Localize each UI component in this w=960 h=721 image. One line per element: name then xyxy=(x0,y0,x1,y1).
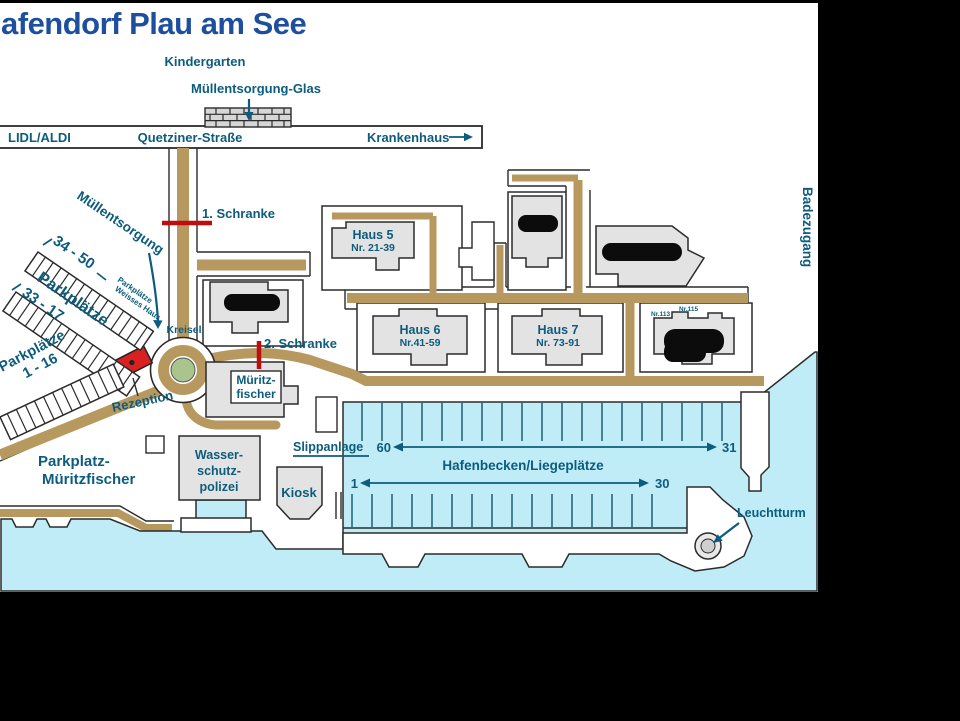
label-police-line3: polizei xyxy=(200,480,239,494)
label-haus6-name: Haus 6 xyxy=(400,323,441,337)
label-slippanlage: Slippanlage xyxy=(293,440,363,454)
label-police-line1: Wasser- xyxy=(195,448,243,462)
label-berth-60: 60 xyxy=(377,440,391,455)
label-haus6-nr: Nr.41-59 xyxy=(400,337,441,349)
label-leuchtturm: Leuchtturm xyxy=(737,506,806,520)
label-haus7-name: Haus 7 xyxy=(538,323,579,337)
label-kiosk: Kiosk xyxy=(281,485,317,500)
slipway-ramp xyxy=(316,397,337,432)
label-haus5-name: Haus 5 xyxy=(353,228,394,242)
redacted-name-blob xyxy=(224,294,280,311)
harbor-map-page: afendorf Plau am See Kindergarten Müllen… xyxy=(0,0,960,721)
label-haus5-nr: Nr. 21-39 xyxy=(351,242,395,254)
frame-bottom xyxy=(0,592,960,721)
frame-top xyxy=(0,0,960,3)
label-lidl-aldi: LIDL/ALDI xyxy=(8,130,71,145)
label-schranke-1: 1. Schranke xyxy=(202,206,275,221)
label-berth-1: 1 xyxy=(351,476,358,491)
label-police-line2: schutz- xyxy=(197,464,241,478)
label-krankenhaus: Krankenhaus xyxy=(367,130,449,145)
label-muellentsorgung-glas: Müllentsorgung-Glas xyxy=(191,81,321,96)
label-quetziner-strasse: Quetziner-Straße xyxy=(138,130,243,145)
building-small-hut xyxy=(146,436,164,453)
label-kreisel: Kreisel xyxy=(166,324,201,336)
label-mueritzfischer-line2: fischer xyxy=(236,387,276,401)
label-kindergarten: Kindergarten xyxy=(165,54,246,69)
label-badezugang: Badezugang xyxy=(800,187,815,267)
label-parkplatz-mf-line1: Parkplatz- xyxy=(38,453,110,470)
label-hafenbecken: Hafenbecken/Liegeplätze xyxy=(442,458,604,473)
label-schranke-2: 2. Schranke xyxy=(264,336,337,351)
label-haus7-nr: Nr. 73-91 xyxy=(536,337,580,349)
label-mueritzfischer-line1: Müritz- xyxy=(236,373,275,387)
lighthouse-tower-icon xyxy=(701,539,715,553)
label-parkplatz-mf-line2: Müritzfischer xyxy=(42,471,136,488)
label-nr115: Nr.115 xyxy=(679,306,699,313)
redacted-name-blob xyxy=(518,215,558,232)
label-nr113: Nr.113 xyxy=(651,311,671,318)
police-dock-bridge xyxy=(181,518,251,532)
redacted-name-blob xyxy=(664,342,706,362)
label-berth-30: 30 xyxy=(655,476,669,491)
label-berth-31: 31 xyxy=(722,440,736,455)
page-title: afendorf Plau am See xyxy=(1,6,307,41)
roundabout-center-green xyxy=(171,358,195,382)
redacted-name-blob xyxy=(602,243,682,261)
harbor-map: afendorf Plau am See Kindergarten Müllen… xyxy=(0,0,960,721)
